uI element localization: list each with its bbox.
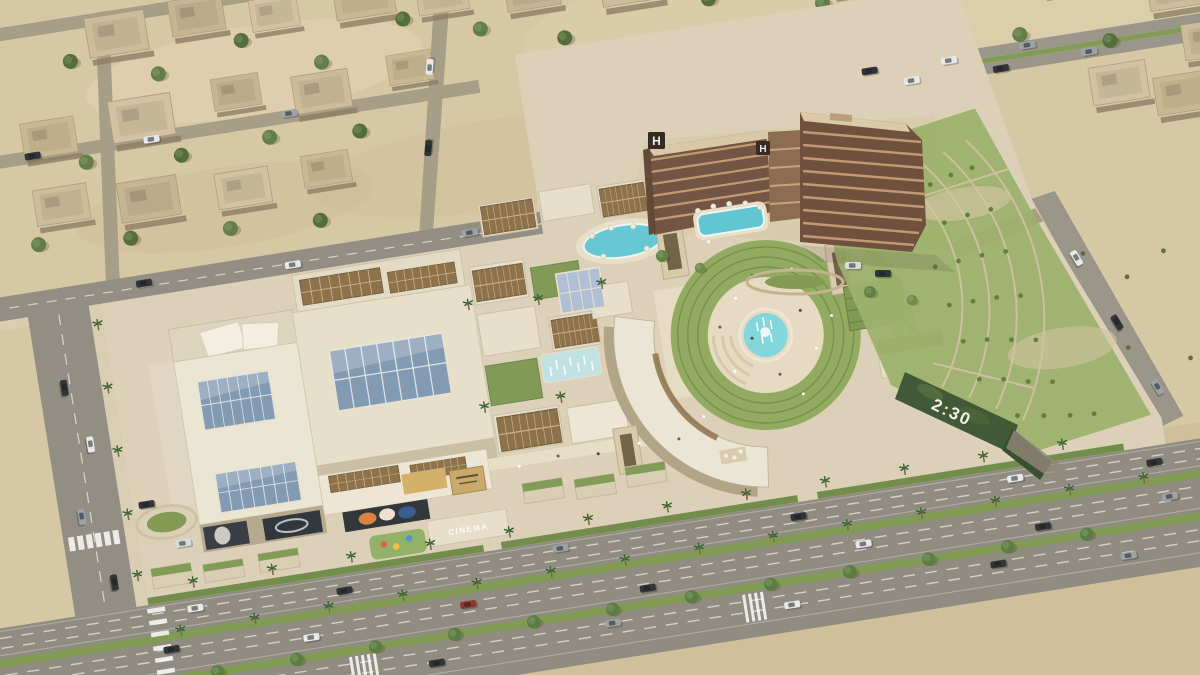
render-canvas: CINEMA xyxy=(0,0,1200,675)
aerial-render: CINEMA xyxy=(0,0,1200,675)
light-wash xyxy=(0,0,1200,675)
